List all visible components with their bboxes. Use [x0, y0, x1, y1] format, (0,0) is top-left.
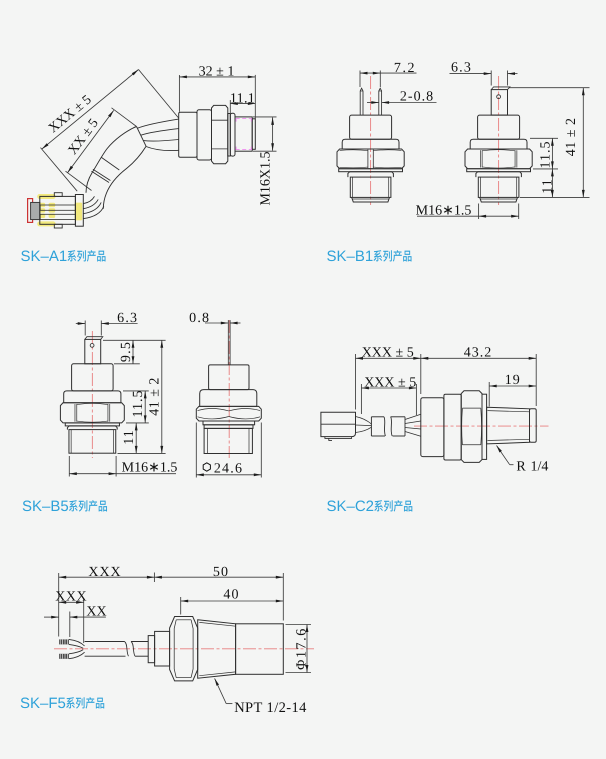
svg-text:32 ± 1: 32 ± 1: [199, 65, 235, 80]
svg-text:9.5: 9.5: [119, 341, 134, 362]
svg-text:NPT 1/2-14: NPT 1/2-14: [234, 700, 307, 716]
svg-text:R: R: [516, 460, 526, 475]
svg-text:6.3: 6.3: [117, 311, 138, 326]
svg-text:XXX ± 5: XXX ± 5: [362, 346, 414, 361]
svg-text:SK–A1: SK–A1: [21, 248, 68, 265]
svg-text:XXX: XXX: [55, 590, 87, 605]
svg-text:2-0.8: 2-0.8: [400, 90, 434, 105]
svg-text:SK–B1: SK–B1: [327, 248, 374, 265]
svg-text:40: 40: [223, 587, 239, 602]
svg-text:19: 19: [505, 373, 521, 388]
svg-text:6.3: 6.3: [451, 61, 472, 76]
svg-text:0.8: 0.8: [189, 311, 210, 326]
svg-text:SK–F5: SK–F5: [20, 695, 66, 712]
svg-text:11: 11: [122, 429, 137, 444]
svg-text:11.5: 11.5: [131, 390, 146, 418]
svg-text:SK–C2: SK–C2: [327, 498, 375, 515]
svg-text:SK–B5: SK–B5: [22, 498, 69, 515]
svg-text:11: 11: [541, 178, 556, 193]
svg-text:XX: XX: [86, 605, 106, 620]
svg-text:M16∗1.5: M16∗1.5: [416, 204, 472, 219]
svg-text:50: 50: [213, 565, 229, 580]
svg-text:XXX: XXX: [88, 565, 121, 580]
svg-text:XXX ± 5: XXX ± 5: [364, 375, 416, 390]
svg-text:11.1: 11.1: [230, 92, 255, 107]
svg-text:M16∗1.5: M16∗1.5: [122, 460, 178, 475]
svg-text:43.2: 43.2: [464, 345, 493, 360]
svg-text:1/4: 1/4: [531, 460, 549, 475]
svg-text:41 ± 2: 41 ± 2: [564, 118, 579, 157]
svg-text:41 ± 2: 41 ± 2: [148, 377, 163, 416]
svg-text:11.5: 11.5: [539, 141, 554, 169]
svg-text:24.6: 24.6: [214, 461, 243, 476]
svg-text:7.2: 7.2: [394, 61, 416, 76]
svg-text:M16X1.5: M16X1.5: [259, 151, 274, 205]
svg-text:Φ17.6: Φ17.6: [295, 627, 310, 670]
